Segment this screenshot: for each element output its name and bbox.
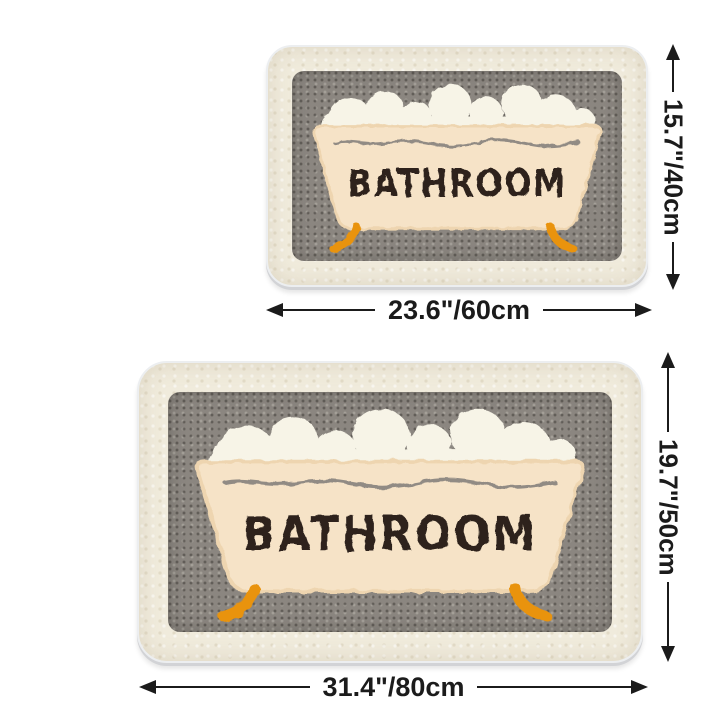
arrow-left-icon (139, 680, 156, 694)
dimension-line-vertical (667, 582, 670, 646)
width-dimension-large: 31.4"/80cm (139, 668, 648, 706)
bathtub-rug-graphic-large: BATHROOM (168, 392, 612, 632)
height-label-large: 19.7"/50cm (653, 439, 684, 576)
arrow-down-icon (661, 646, 675, 662)
arrow-right-icon (631, 680, 648, 694)
bathroom-lettering: BATHROOM (242, 505, 537, 561)
dimension-line-vertical (667, 368, 670, 432)
rug-large-inner-panel: BATHROOM (168, 392, 612, 632)
product-large: BATHROOM 19.7"/50cm 31.4"/80 (0, 0, 720, 720)
dimension-line-horizontal (156, 686, 310, 689)
product-dimensions-image: BATHROOM 15.7"/40cm 23.6"/60 (0, 0, 720, 720)
svg-text:BATHROOM: BATHROOM (242, 505, 537, 561)
arrow-up-icon (661, 352, 675, 368)
tub-foot-left-icon (224, 589, 254, 617)
dimension-line-horizontal (477, 686, 631, 689)
rug-large: BATHROOM (137, 361, 643, 663)
width-label-large: 31.4"/80cm (323, 672, 465, 703)
height-dimension-large: 19.7"/50cm (652, 352, 684, 662)
